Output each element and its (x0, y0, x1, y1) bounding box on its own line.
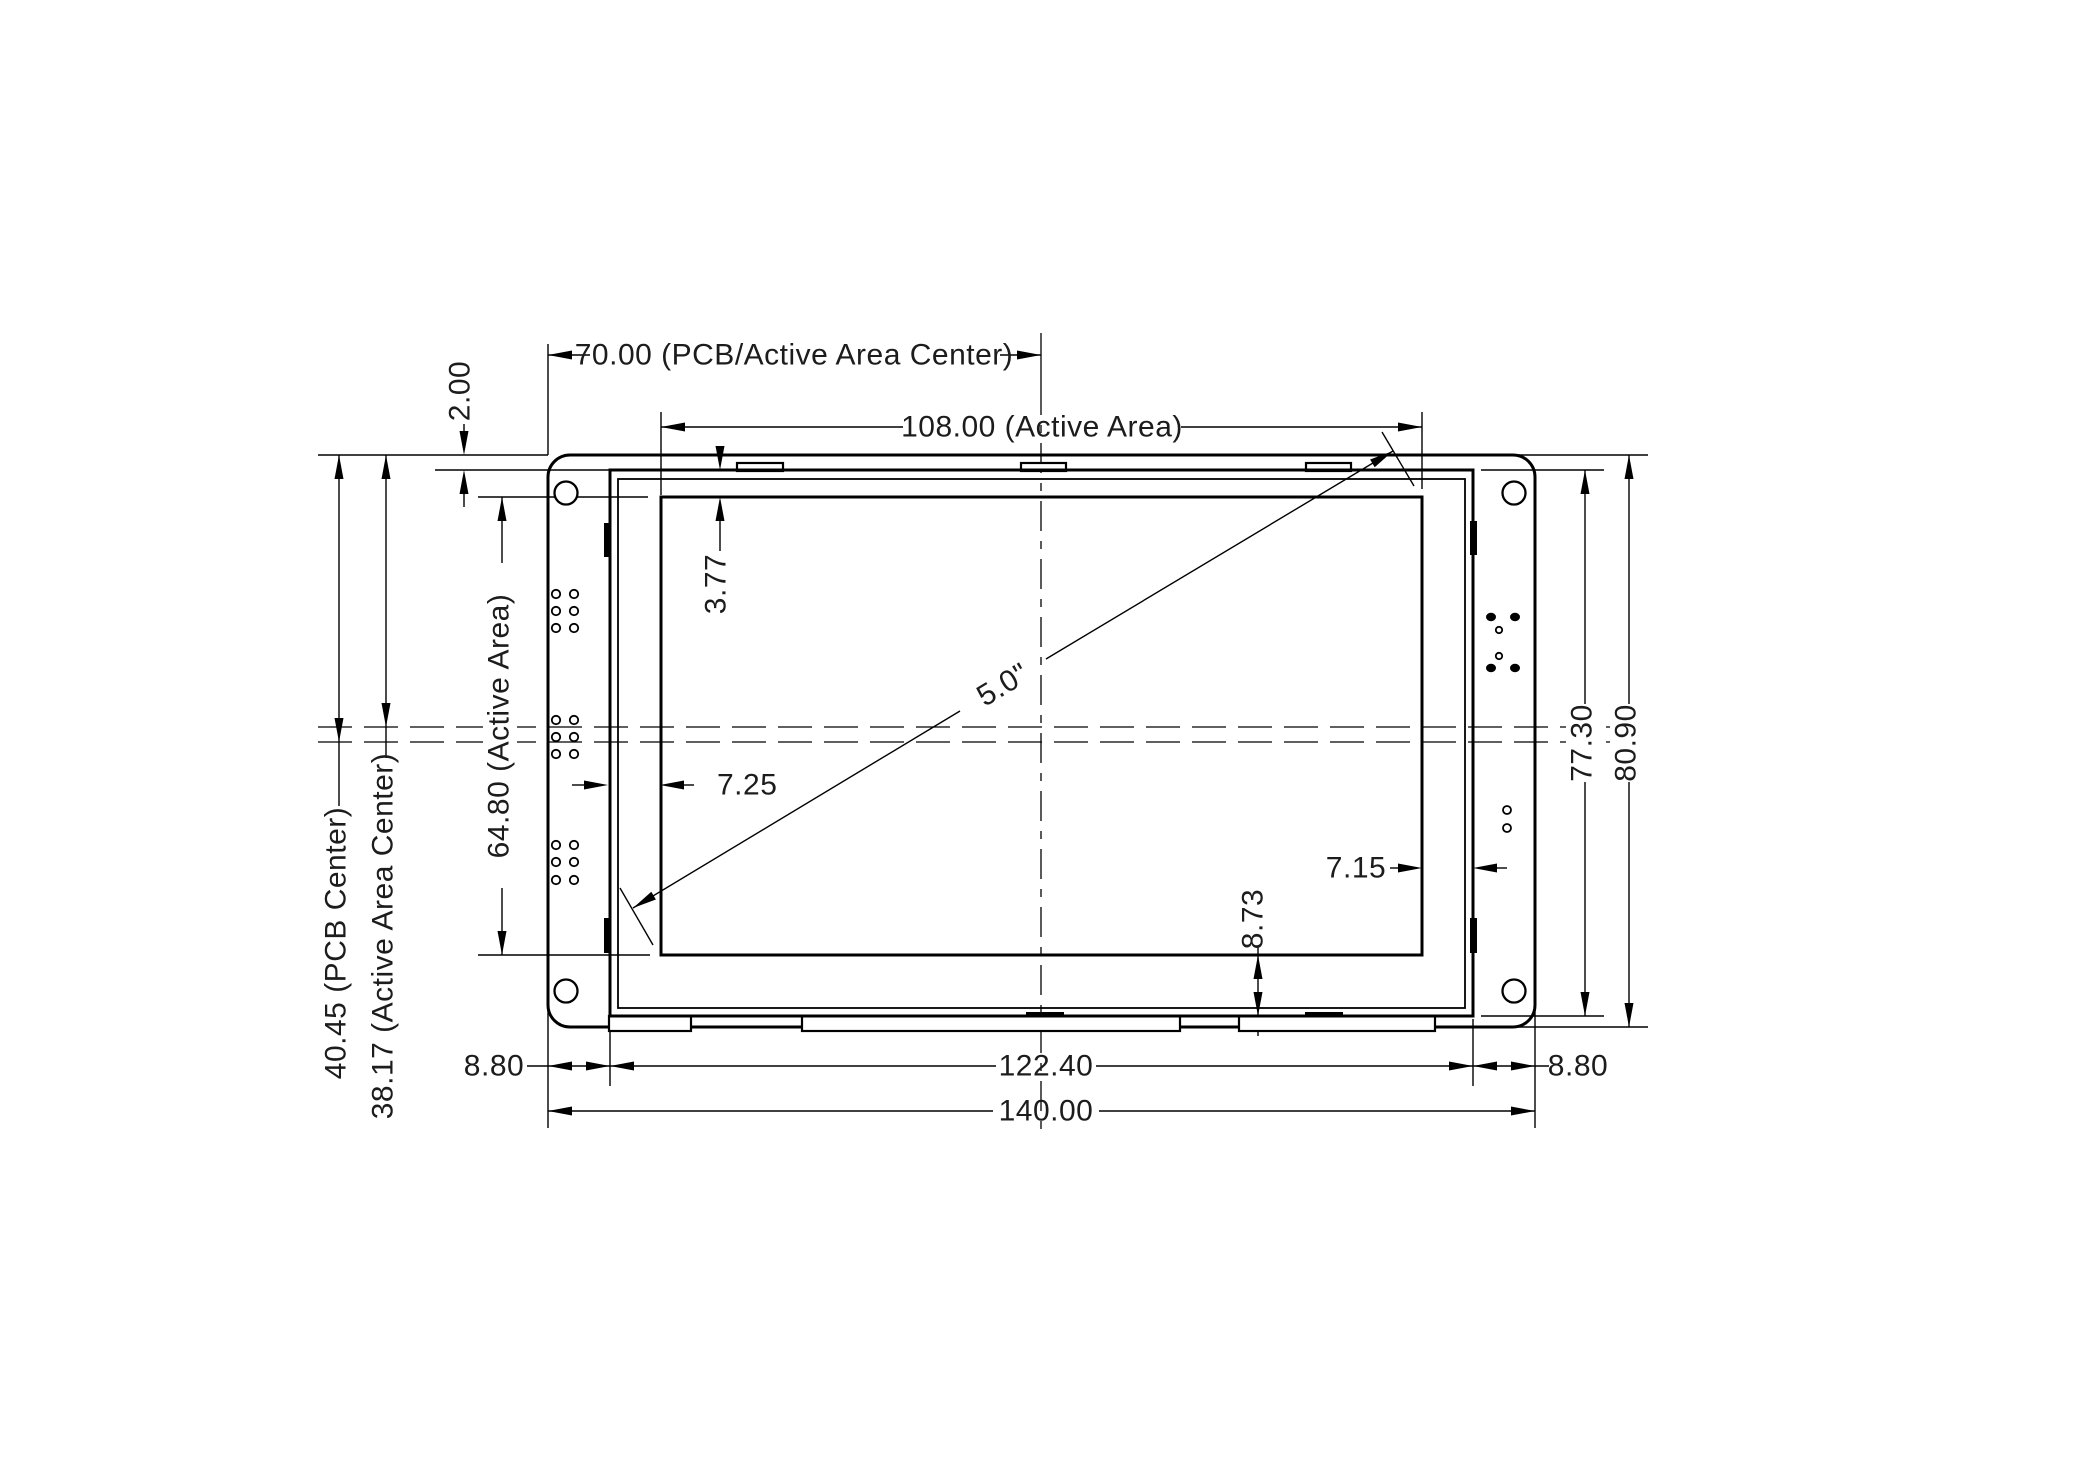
pad (552, 733, 560, 741)
bottom-tab-right (1239, 1016, 1435, 1031)
pad (570, 876, 578, 884)
arrow-left (660, 781, 684, 790)
pad-filled (1510, 613, 1520, 621)
label-diagonal: 5.0" (971, 657, 1035, 713)
arrow-right (1449, 1062, 1473, 1071)
label-active-height: 64.80 (Active Area) (483, 594, 516, 859)
label-active-center-y: 38.17 (Active Area Center) (367, 753, 400, 1120)
pad (570, 590, 578, 598)
arrow-right (584, 781, 608, 790)
frame-clip-left-lower (604, 918, 611, 953)
mounting-hole-bottom-right (1503, 980, 1526, 1003)
arrow-up (716, 497, 725, 521)
label-pcb-width: 140.00 (999, 1095, 1094, 1128)
via (1496, 653, 1502, 659)
pad-filled (1486, 664, 1496, 672)
label-active-width: 108.00 (Active Area) (901, 411, 1183, 444)
pad (570, 733, 578, 741)
arrow-up (1625, 455, 1634, 479)
pad (552, 607, 560, 615)
bottom-tab-slot-center (1026, 1012, 1064, 1017)
arrow-left (661, 423, 685, 432)
bottom-tab-left (609, 1016, 691, 1031)
arrow-right (1511, 1107, 1535, 1116)
pad (552, 716, 560, 724)
frame-clip-right-upper (1470, 521, 1477, 555)
via (1503, 806, 1511, 814)
dimension-active-center-y (382, 455, 391, 758)
arrow-down (460, 431, 469, 455)
arrow-down (335, 718, 344, 742)
dimension-active-left-offset (572, 781, 694, 790)
arrow-down (498, 931, 507, 955)
arrow-left (1473, 864, 1497, 873)
arrow-right (1511, 1062, 1535, 1071)
arrow-diagonal-lower (633, 892, 656, 908)
bottom-tab-slot-right (1305, 1012, 1343, 1017)
dimension-labels: 70.00 (PCB/Active Area Center) 108.00 (A… (320, 339, 1643, 1128)
via (1496, 627, 1502, 633)
label-active-left-offset: 7.25 (717, 769, 777, 802)
arrow-left (1473, 1062, 1497, 1071)
pad (552, 876, 560, 884)
label-pcb-center-y: 40.45 (PCB Center) (320, 807, 353, 1079)
arrow-left (548, 351, 572, 360)
dimension-pcb-center-y (335, 455, 344, 806)
ext-diagonal-tick-top-right (1382, 432, 1414, 486)
frame-clip-left-upper (604, 523, 611, 557)
arrow-diagonal-upper (1370, 451, 1393, 467)
label-active-right-offset: 7.15 (1326, 852, 1386, 885)
pad (552, 624, 560, 632)
mounting-hole-top-left (555, 482, 578, 505)
solder-pads-left (552, 590, 578, 884)
arrow-down (1254, 992, 1263, 1016)
pad (570, 607, 578, 615)
label-top-gap: 2.00 (444, 361, 477, 421)
mounting-hole-top-right (1503, 482, 1526, 505)
arrow-right (1017, 351, 1041, 360)
label-margin-left: 8.80 (464, 1050, 524, 1083)
lcd-module-dimension-drawing: 70.00 (PCB/Active Area Center) 108.00 (A… (0, 0, 2077, 1465)
arrow-right (586, 1062, 610, 1071)
arrow-up (1581, 470, 1590, 494)
pad-filled (1486, 613, 1496, 621)
arrow-down (716, 446, 725, 470)
pad-filled (1510, 664, 1520, 672)
arrow-down (382, 703, 391, 727)
pad (570, 716, 578, 724)
arrow-left (610, 1062, 634, 1071)
label-pcb-height: 80.90 (1610, 704, 1643, 782)
label-active-top-offset: 3.77 (700, 554, 733, 614)
extension-lines (318, 344, 1648, 1128)
arrow-up (460, 470, 469, 494)
arrow-left (548, 1062, 572, 1071)
arrow-down (1581, 992, 1590, 1016)
arrow-down (1625, 1003, 1634, 1027)
arrow-left (548, 1107, 572, 1116)
label-active-bottom-offset: 8.73 (1237, 889, 1270, 949)
pad (552, 590, 560, 598)
frame-clip-right-lower (1470, 918, 1477, 953)
arrow-up (382, 455, 391, 479)
arrow-up (335, 455, 344, 479)
arrow-right (1398, 864, 1422, 873)
pad (552, 858, 560, 866)
dimension-top-gap (460, 424, 469, 507)
pad (570, 858, 578, 866)
dimension-active-right-offset (1390, 864, 1507, 873)
drawing-canvas: 70.00 (PCB/Active Area Center) 108.00 (A… (0, 0, 2077, 1465)
bottom-tab-center (802, 1016, 1180, 1031)
arrow-right (1398, 423, 1422, 432)
label-pcb-center-x: 70.00 (PCB/Active Area Center) (575, 339, 1014, 372)
pad (552, 750, 560, 758)
via (1503, 824, 1511, 832)
pad (570, 750, 578, 758)
arrow-up (1254, 955, 1263, 979)
label-module-width: 122.40 (999, 1050, 1094, 1083)
mounting-hole-bottom-left (555, 980, 578, 1003)
solder-pads-right (1486, 613, 1520, 832)
label-module-height: 77.30 (1566, 704, 1599, 782)
pad (570, 624, 578, 632)
pad (570, 841, 578, 849)
arrow-up (498, 497, 507, 521)
label-margin-right: 8.80 (1548, 1050, 1608, 1083)
pad (552, 841, 560, 849)
